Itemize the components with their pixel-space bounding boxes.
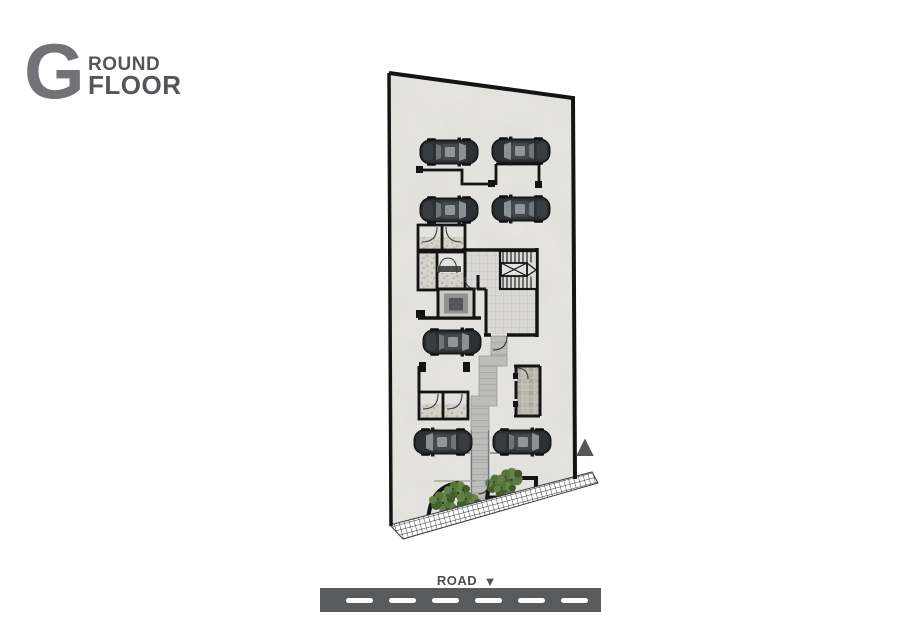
floor-plan-sheet: G ROUND FLOOR [0, 0, 900, 636]
site-boundary [389, 73, 391, 526]
road: ROAD ▼ [320, 573, 601, 612]
road-dash [389, 598, 416, 603]
door-jamb [463, 362, 470, 372]
road-dash [561, 598, 588, 603]
floor-plan-canvas: G ROUND FLOOR [0, 0, 900, 636]
car-icon [492, 195, 550, 224]
car-icon [414, 428, 472, 457]
title-line2: FLOOR [88, 70, 182, 100]
door-jamb [535, 181, 542, 188]
toilet-floor [444, 404, 467, 418]
door-jamb [416, 310, 425, 318]
road-direction-icon: ▼ [484, 574, 497, 589]
road-dash [518, 598, 545, 603]
stairs-icon [500, 251, 537, 289]
store-room-floor [517, 367, 539, 415]
door-jamb [513, 401, 518, 407]
title-initial: G [24, 27, 85, 115]
toilet-floor [419, 253, 436, 289]
door-jamb [416, 166, 423, 173]
car-icon [492, 137, 550, 166]
car-icon [420, 138, 478, 167]
road-dash [432, 598, 459, 603]
toilet-floor [419, 237, 441, 249]
toilet-floor [443, 237, 464, 249]
toilet-floor [420, 404, 442, 418]
floor-plan: ▲ [380, 60, 600, 540]
door-jamb [488, 180, 495, 187]
road-label: ROAD [437, 573, 477, 588]
road-dash [346, 598, 373, 603]
road-dash [475, 598, 502, 603]
door-jamb [513, 373, 518, 379]
car-icon [423, 328, 481, 357]
car-icon [493, 428, 551, 457]
elevator-icon [438, 289, 474, 318]
north-arrow-icon: ▲ [570, 430, 600, 463]
page-title: G ROUND FLOOR [24, 27, 182, 115]
car-icon [420, 196, 478, 225]
toilet-floor [438, 273, 464, 289]
